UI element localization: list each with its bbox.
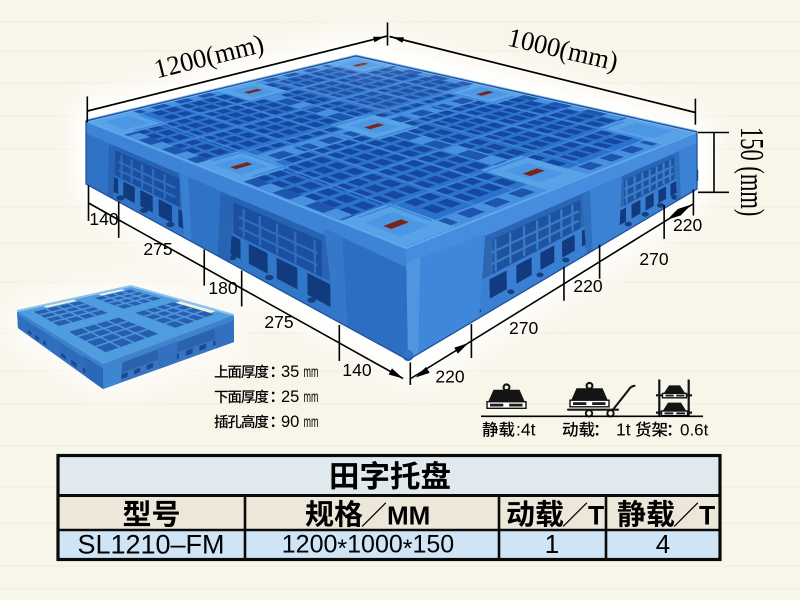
svg-text:220: 220 — [435, 367, 464, 387]
svg-text:270: 270 — [639, 249, 668, 269]
svg-text:220: 220 — [673, 215, 702, 235]
svg-text:MM: MM — [387, 501, 430, 531]
svg-text:T: T — [699, 501, 715, 531]
svg-text:90: 90 — [281, 413, 299, 431]
svg-text:140: 140 — [342, 360, 371, 380]
svg-text:1t: 1t — [616, 420, 631, 440]
svg-text:25: 25 — [281, 388, 299, 406]
svg-text:1: 1 — [545, 529, 559, 559]
svg-text:mm: mm — [304, 389, 319, 406]
svg-text:180: 180 — [208, 278, 237, 298]
svg-text:4: 4 — [656, 529, 670, 559]
svg-text:275: 275 — [143, 239, 172, 259]
svg-text:275: 275 — [264, 312, 293, 332]
svg-text:270: 270 — [509, 318, 538, 338]
svg-text:1200*1000*150: 1200*1000*150 — [282, 531, 454, 564]
svg-text:150 (mm): 150 (mm) — [733, 127, 771, 216]
svg-text:140: 140 — [89, 209, 118, 229]
svg-text:mm: mm — [304, 414, 319, 431]
svg-text:SL1210–FM: SL1210–FM — [77, 530, 224, 560]
svg-text:T: T — [588, 501, 604, 531]
svg-text::4t: :4t — [516, 420, 536, 440]
svg-text:220: 220 — [573, 276, 602, 296]
svg-text:35: 35 — [281, 363, 299, 381]
svg-text:0.6t: 0.6t — [680, 421, 709, 440]
svg-text:mm: mm — [304, 364, 319, 381]
